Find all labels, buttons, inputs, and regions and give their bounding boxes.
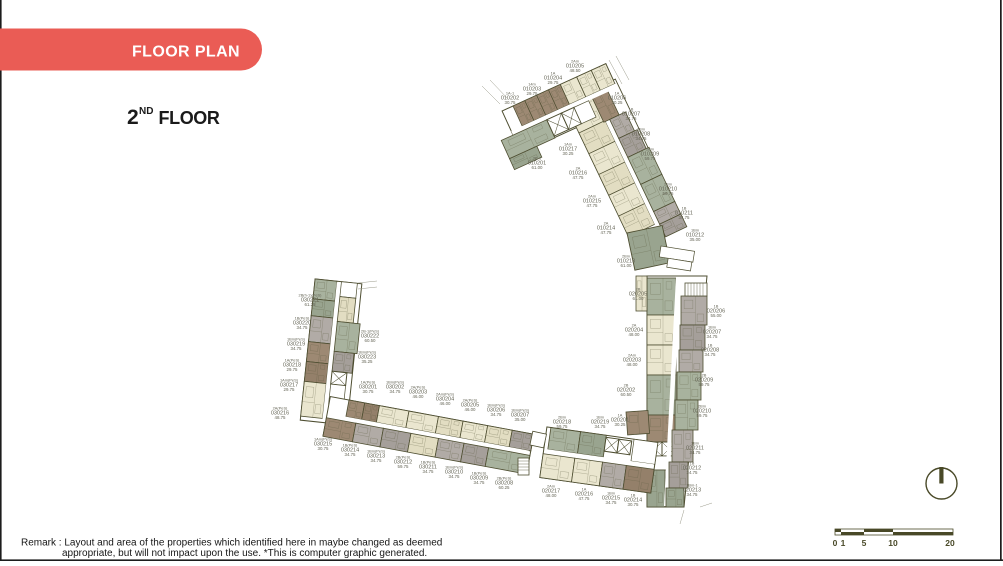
svg-text:FLOOR PLAN: FLOOR PLAN [132,44,240,61]
svg-text:1: 1 [841,538,846,548]
svg-text:5: 5 [862,538,867,548]
svg-text:20: 20 [945,538,955,548]
svg-text:0: 0 [833,538,838,548]
svg-text:2: 2 [127,106,139,129]
svg-text:Remark : Layout and area of t: Remark : Layout and area of the properti… [21,538,442,549]
svg-text:appropriate, but will not impa: appropriate, but will not impact upon th… [62,548,427,559]
svg-text:FLOOR: FLOOR [159,108,220,128]
svg-text:ND: ND [139,106,153,117]
svg-text:10: 10 [888,538,898,548]
